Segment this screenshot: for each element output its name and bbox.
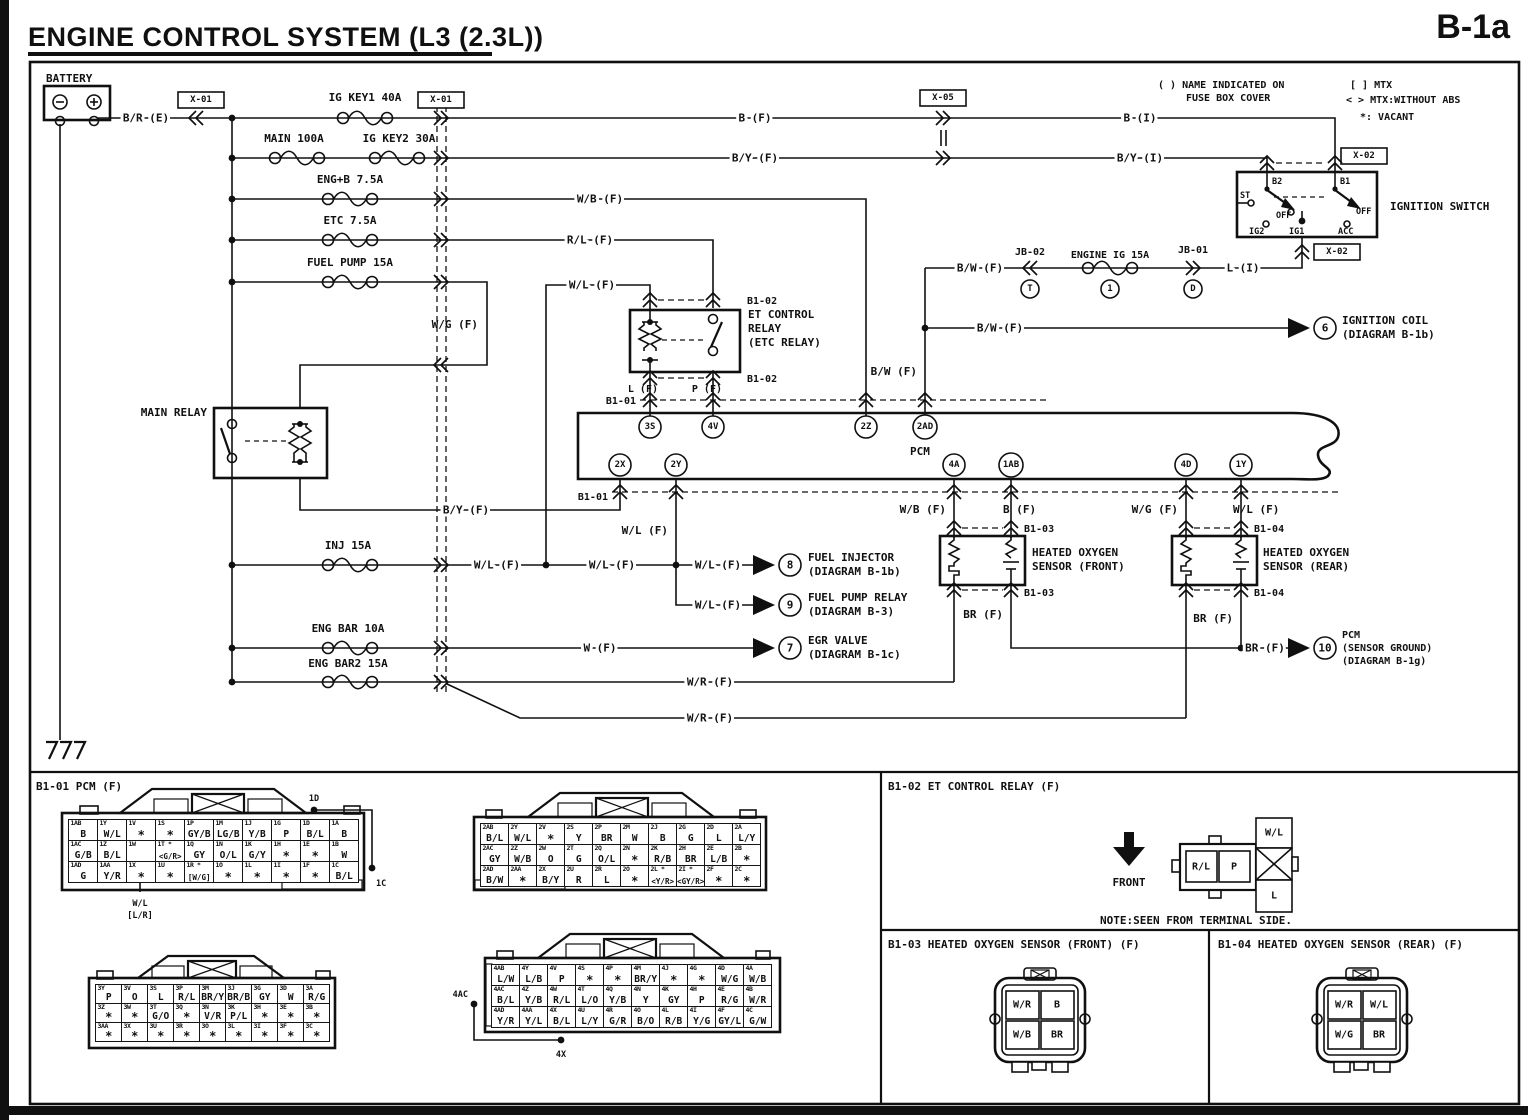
pin-cell-2S: 2SY: [564, 823, 593, 845]
pin-cell-1S: 1S*: [155, 819, 185, 841]
pin-cell-2N: 2N*: [620, 844, 649, 866]
pin-cell-2I: 2I *<GY/R>: [676, 865, 705, 887]
pin-cell-2AD: 2ADB/W: [480, 865, 509, 887]
ignition-switch-label: IGNITION SWITCH: [1390, 200, 1489, 213]
b102-row-label-upper: B1-02: [747, 296, 777, 307]
pin-cell-2G: 2GG: [676, 823, 705, 845]
pin-cell-2E: 2EL/B: [704, 844, 733, 866]
legend-name-note-1: ( ) NAME INDICATED ON: [1158, 80, 1284, 91]
ref-10-line3: (DIAGRAM B-1g): [1342, 656, 1426, 667]
panel-b103-header: B1-03 HEATED OXYGEN SENSOR (FRONT) (F): [888, 938, 1140, 951]
heated-oxygen-sensor-front: B1-03 B1-03 HEATED OXYGEN SENSOR (FRONT): [940, 521, 1125, 599]
pin-cell-3P: 3PR/L: [173, 984, 200, 1004]
ignition-off-left: OFF: [1276, 211, 1291, 221]
pin-cell-2K: 2KR/B: [648, 844, 677, 866]
pin-cell-4P: 4P*: [603, 964, 632, 986]
b101-row-label-lower: B1-01: [578, 492, 608, 503]
wire-p-f: P (F): [692, 384, 722, 395]
x02-box-lower: X-02: [1326, 247, 1348, 257]
pin-cell-4L: 4LR/B: [659, 1006, 688, 1028]
pin-cell-3E: 3E*: [277, 1003, 304, 1023]
ignition-terminal-ig1: IG1: [1289, 227, 1304, 237]
note-4ac: 4AC: [453, 990, 468, 1000]
pcm-label: PCM: [910, 445, 930, 458]
b104-cell-2: W/G: [1335, 1030, 1353, 1041]
ref-6-line1: IGNITION COIL: [1342, 314, 1428, 327]
wire-wl-f-2y: W/L (F): [622, 524, 668, 537]
wire-wl-f-inj2: W/L (F): [589, 559, 635, 572]
wire-br-f-ground: BR (F): [1245, 642, 1285, 655]
ref-7-line2: (DIAGRAM B-1c): [808, 648, 901, 661]
pin-cell-2AA: 2AA*: [508, 865, 537, 887]
b103-connector: W/R B W/B BR: [990, 968, 1090, 1072]
pcm-terminal-2y: 2Y: [671, 460, 682, 470]
fuse-inj: INJ 15A: [325, 539, 372, 552]
wiring-diagram-page: ENGINE CONTROL SYSTEM (L3 (2.3L)) B-1a (…: [0, 0, 1536, 1120]
pin-cell-4M: 4MBR/Y: [631, 964, 660, 986]
junction-t: T: [1027, 284, 1033, 294]
wire-wg-f: W/G (F): [432, 318, 478, 331]
pin-cell-3O: 3O*: [199, 1022, 226, 1042]
wire-wl-f-relay: W/L (F): [569, 279, 615, 292]
panel-b102-header: B1-02 ET CONTROL RELAY (F): [888, 780, 1060, 793]
wire-bw-f-coil: B/W (F): [977, 322, 1023, 335]
x05-box: X-05: [932, 93, 954, 103]
wire-by-f-top: B/Y (F): [732, 152, 778, 165]
hos-front-label-1: HEATED OXYGEN: [1032, 546, 1118, 559]
wire-wl-f-fpr: W/L (F): [695, 599, 741, 612]
pin-cell-1I: 1I*: [271, 861, 301, 883]
pin-cell-3Y: 3YP: [95, 984, 122, 1004]
pin-cell-3Q: 3Q*: [173, 1003, 200, 1023]
pcm-terminal-1y: 1Y: [1236, 460, 1247, 470]
panel-b104-header: B1-04 HEATED OXYGEN SENSOR (REAR) (F): [1218, 938, 1463, 951]
pin-cell-4AB: 4ABL/W: [491, 964, 520, 986]
fuse-eng-bar: ENG BAR 10A: [312, 622, 385, 635]
fuse-ig-key2: IG KEY2 30A: [363, 132, 436, 145]
et-control-relay: ET CONTROL RELAY (ETC RELAY): [630, 308, 821, 372]
wire-l-f: L (F): [628, 384, 658, 395]
pin-cell-1W: 1W: [126, 840, 156, 862]
pin-cell-4E: 4ER/G: [715, 985, 744, 1007]
pcm-terminal-4d: 4D: [1181, 460, 1192, 470]
pin-cell-2U: 2UR: [564, 865, 593, 887]
b103-row-upper: B1-03: [1024, 524, 1054, 535]
pin-cell-4AD: 4ADY/R: [491, 1006, 520, 1028]
pcm-terminal-3s: 3S: [645, 422, 656, 432]
ref-9-number: 9: [787, 599, 794, 612]
pin-cell-4J: 4J*: [659, 964, 688, 986]
b104-connector: W/R W/L W/G BR: [1312, 968, 1412, 1072]
ref-8-line2: (DIAGRAM B-1b): [808, 565, 901, 578]
pin-cell-1AB: 1ABB: [68, 819, 98, 841]
pcm-terminal-2ad: 2AD: [917, 422, 934, 432]
legend-vacant: *: VACANT: [1360, 112, 1414, 123]
pin-cell-1AA: 1AAY/R: [97, 861, 127, 883]
pin-cell-1M: 1MLG/B: [213, 819, 243, 841]
pin-cell-2A: 2AL/Y: [732, 823, 761, 845]
pin-cell-3Z: 3Z*: [95, 1003, 122, 1023]
schematic-canvas: ENGINE CONTROL SYSTEM (L3 (2.3L)) B-1a (…: [0, 0, 1536, 1120]
pcm-terminal-1ab: 1AB: [1003, 460, 1020, 470]
pin-cell-1A: 1AB: [329, 819, 359, 841]
ref-7-number: 7: [787, 642, 794, 655]
pin-cell-2H: 2HBR: [676, 844, 705, 866]
fuse-etc: ETC 7.5A: [324, 214, 377, 227]
pin-cell-2Q: 2QO/L: [592, 844, 621, 866]
pin-cell-2AC: 2ACGY: [480, 844, 509, 866]
fuse-eng-bar2: ENG BAR2 15A: [308, 657, 388, 670]
fuse-fuel-pump: FUEL PUMP 15A: [307, 256, 393, 269]
front-label: FRONT: [1112, 876, 1145, 889]
pin-cell-3S: 3SL: [147, 984, 174, 1004]
fuse-ig-key1: IG KEY1 40A: [329, 91, 402, 104]
ref-9-line2: (DIAGRAM B-3): [808, 605, 894, 618]
pin-cell-3R: 3R*: [173, 1022, 200, 1042]
pin-cell-2R: 2RL: [592, 865, 621, 887]
b104-row-lower: B1-04: [1254, 588, 1284, 599]
pin-cell-4D: 4DW/G: [715, 964, 744, 986]
pcm-terminal-4a: 4A: [949, 460, 960, 470]
pin-cell-3A: 3AR/G: [303, 984, 330, 1004]
junction-1: 1: [1107, 284, 1112, 294]
b103-cell-2: W/B: [1013, 1030, 1031, 1041]
ignition-terminal-b2: B2: [1272, 177, 1282, 187]
b102-cell-p: P: [1231, 862, 1237, 873]
pin-cell-3F: 3F*: [277, 1022, 304, 1042]
pin-cell-3H: 3H*: [251, 1003, 278, 1023]
pin-cell-4N: 4NY: [631, 985, 660, 1007]
pin-cell-2T: 2TG: [564, 844, 593, 866]
legend-name-note-2: FUSE BOX COVER: [1186, 93, 1271, 104]
pin-cell-1B: 1BW: [329, 840, 359, 862]
ref-10-line1: PCM: [1342, 630, 1360, 641]
pin-cell-1U: 1U*: [155, 861, 185, 883]
wire-wl-f-inj1: W/L (F): [474, 559, 520, 572]
pin-cell-4K: 4KGY: [659, 985, 688, 1007]
et-relay-label-1: ET CONTROL: [748, 308, 815, 321]
pin-cell-1D: 1DB/L: [300, 819, 330, 841]
wire-rl-f: R/L (F): [567, 234, 613, 247]
pin-cell-4U: 4UL/Y: [575, 1006, 604, 1028]
pin-cell-4F: 4FGY/L: [715, 1006, 744, 1028]
b102-cell-l: L: [1271, 891, 1277, 902]
pin-cell-4G: 4G*: [687, 964, 716, 986]
hos-rear-label-2: SENSOR (REAR): [1263, 560, 1349, 573]
pin-cell-4H: 4HP: [687, 985, 716, 1007]
b103-cell-3: BR: [1051, 1030, 1064, 1041]
pin-cell-4Y: 4YL/B: [519, 964, 548, 986]
b102-panel: FRONT R/L P W/L L NOTE:SEEN FROM TERMINA…: [1100, 818, 1298, 927]
pin-cell-2J: 2JB: [648, 823, 677, 845]
pin-cell-1O: 1O*: [213, 861, 243, 883]
title-underline: [28, 52, 492, 56]
ignition-switch: B2 B1 ST OFF IG2 IG1 ACC OFF IGNITION SW…: [1237, 156, 1489, 259]
wire-wr-f-2: W/R (F): [687, 712, 733, 725]
pin-cell-3C: 3C*: [303, 1022, 330, 1042]
pin-cell-1Y: 1YW/L: [97, 819, 127, 841]
b104-row-upper: B1-04: [1254, 524, 1284, 535]
pin-cell-2B: 2B*: [732, 844, 761, 866]
wire-br-f-rear: BR (F): [1193, 612, 1233, 625]
pin-cell-4A: 4AW/B: [743, 964, 772, 986]
pin-cell-4C: 4CG/W: [743, 1006, 772, 1028]
wire-by-i: B/Y (I): [1117, 152, 1163, 165]
pin-cell-3U: 3U*: [147, 1022, 174, 1042]
pin-cell-1E: 1E*: [300, 840, 330, 862]
pin-cell-1C: 1CB/L: [329, 861, 359, 883]
pin-cell-3K: 3KP/L: [225, 1003, 252, 1023]
pin-cell-2W: 2WO: [536, 844, 565, 866]
wire-bw-f-jb: B/W (F): [957, 262, 1003, 275]
junction-d: D: [1190, 284, 1196, 294]
wire-br-e: B/R (E): [123, 112, 169, 125]
main-relay-label: MAIN RELAY: [141, 406, 208, 419]
pin-cell-2F: 2F*: [704, 865, 733, 887]
fuse-engine-ig: ENGINE IG 15A: [1071, 250, 1149, 261]
pin-cell-3N: 3NV/R: [199, 1003, 226, 1023]
pin-cell-3V: 3VO: [121, 984, 148, 1004]
page-code: B-1a: [1436, 8, 1511, 46]
pin-cell-4I: 4IY/G: [687, 1006, 716, 1028]
pin-cell-1L: 1L*: [242, 861, 272, 883]
pin-cell-4X: 4XB/L: [547, 1006, 576, 1028]
pin-cell-3AA: 3AA*: [95, 1022, 122, 1042]
pin-cell-4T: 4TL/O: [575, 985, 604, 1007]
wire-wb-f-4a: W/B (F): [900, 503, 946, 516]
wire-w-f: W (F): [583, 642, 616, 655]
b104-cell-0: W/R: [1335, 1000, 1354, 1011]
pin-cell-4O: 4OB/O: [631, 1006, 660, 1028]
wire-bw-f-2ad: B/W (F): [871, 365, 917, 378]
scan-bottom-bar: [8, 1106, 1528, 1115]
note-lr: [L/R]: [127, 911, 153, 921]
wire-wg-f-4d: W/G (F): [1132, 503, 1178, 516]
b103-row-lower: B1-03: [1024, 588, 1054, 599]
wire-wl-f-1y: W/L (F): [1233, 503, 1279, 516]
hos-rear-label-1: HEATED OXYGEN: [1263, 546, 1349, 559]
pin-cell-4R: 4RG/R: [603, 1006, 632, 1028]
x01-box-a: X-01: [190, 95, 212, 105]
pin-cell-2V: 2V*: [536, 823, 565, 845]
fuse-main: MAIN 100A: [264, 132, 324, 145]
pin-cell-3D: 3DW: [277, 984, 304, 1004]
pin-cell-3T: 3TG/O: [147, 1003, 174, 1023]
pcm-terminal-4v: 4V: [708, 422, 719, 432]
jb02-label: JB-02: [1015, 247, 1045, 258]
pin-cell-1J: 1JY/B: [242, 819, 272, 841]
pin-cell-1N: 1NO/L: [213, 840, 243, 862]
wire-b-f: B (F): [738, 112, 771, 125]
pin-cell-4AA: 4AAY/L: [519, 1006, 548, 1028]
b102-note: NOTE:SEEN FROM TERMINAL SIDE.: [1100, 914, 1292, 927]
x02-box-upper: X-02: [1353, 151, 1375, 161]
pin-cell-2O: 2O*: [620, 865, 649, 887]
legend-mtx-abs: < > MTX:WITHOUT ABS: [1346, 95, 1460, 106]
pin-cell-4S: 4S*: [575, 964, 604, 986]
main-relay: MAIN RELAY: [141, 406, 327, 478]
ref-8-number: 8: [787, 559, 794, 572]
legend: ( ) NAME INDICATED ON FUSE BOX COVER [ ]…: [1158, 80, 1460, 123]
ignition-terminal-b1: B1: [1340, 177, 1350, 187]
note-4x: 4X: [556, 1050, 566, 1060]
pin-cell-1AD: 1ADG: [68, 861, 98, 883]
pin-cell-3G: 3GGY: [251, 984, 278, 1004]
pin-cell-4B: 4BW/R: [743, 985, 772, 1007]
b103-cell-1: B: [1054, 1000, 1060, 1011]
pin-cell-2L: 2L *<Y/R>: [648, 865, 677, 887]
b101-crossings: B1-01 B1-01: [578, 393, 1340, 503]
wire-wl-f-inj3: W/L (F): [695, 559, 741, 572]
pin-cell-2M: 2MW: [620, 823, 649, 845]
ignition-terminal-acc: ACC: [1338, 227, 1353, 237]
pin-cell-4V: 4VP: [547, 964, 576, 986]
wire-b-i: B (I): [1123, 112, 1156, 125]
ref-6-number: 6: [1322, 322, 1329, 335]
pin-cell-1AC: 1ACG/B: [68, 840, 98, 862]
pin-cell-3L: 3L*: [225, 1022, 252, 1042]
pcm: PCM 3S 4V 2Z 2AD 2X 2Y 4A 1AB 4D 1Y: [578, 413, 1339, 479]
ignition-off-right: OFF: [1356, 207, 1371, 217]
fuse-eng-b: ENG+B 7.5A: [317, 173, 384, 186]
pin-cell-2P: 2PBR: [592, 823, 621, 845]
pin-cell-2X: 2XB/Y: [536, 865, 565, 887]
pin-cell-1Z: 1ZB/L: [97, 840, 127, 862]
pin-cell-4Q: 4QY/B: [603, 985, 632, 1007]
pin-cell-1F: 1F*: [300, 861, 330, 883]
ref-10-line2: (SENSOR GROUND): [1342, 643, 1432, 654]
pin-cell-3X: 3X*: [121, 1022, 148, 1042]
wire-l-i: L (I): [1226, 262, 1259, 275]
b103-cell-0: W/R: [1013, 1000, 1032, 1011]
pin-cell-2C: 2C*: [732, 865, 761, 887]
b102-cell-wl: W/L: [1265, 828, 1283, 839]
b104-cell-3: BR: [1373, 1030, 1386, 1041]
battery-label: BATTERY: [46, 72, 93, 85]
note-1c: 1C: [376, 879, 386, 889]
page-title: ENGINE CONTROL SYSTEM (L3 (2.3L)): [28, 22, 544, 52]
note-1d: 1D: [309, 794, 319, 804]
note-wl: W/L: [132, 899, 147, 909]
ignition-terminal-ig2: IG2: [1249, 227, 1264, 237]
pin-cell-1K: 1KG/Y: [242, 840, 272, 862]
pin-cell-2Y: 2YW/L: [508, 823, 537, 845]
wire-wr-f-1: W/R (F): [687, 676, 733, 689]
ignition-terminal-st: ST: [1240, 191, 1250, 201]
x01-box-b: X-01: [430, 95, 452, 105]
pin-cell-2Z: 2ZW/B: [508, 844, 537, 866]
pin-cell-2D: 2DL: [704, 823, 733, 845]
wire-labels: B/R (E) B (F) B (I) B/Y (F) B/Y (I) W/B …: [123, 112, 1285, 725]
heated-oxygen-sensor-rear: B1-04 B1-04 HEATED OXYGEN SENSOR (REAR): [1172, 521, 1349, 599]
wire-by-f-lower: B/Y (F): [443, 504, 489, 517]
pin-cell-1H: 1H*: [271, 840, 301, 862]
pin-cell-4Z: 4ZY/B: [519, 985, 548, 1007]
pin-cell-1Q: 1QGY: [184, 840, 214, 862]
pin-cell-1P: 1PGY/B: [184, 819, 214, 841]
et-relay-label-2: RELAY: [748, 322, 781, 335]
pcm-terminals: 3S 4V 2Z 2AD 2X 2Y 4A 1AB 4D 1Y: [609, 415, 1252, 477]
fuse-labels: IG KEY1 40A MAIN 100A IG KEY2 30A ENG+B …: [264, 91, 1149, 670]
ref-10-number: 10: [1318, 642, 1331, 655]
pin-cell-3M: 3MBR/Y: [199, 984, 226, 1004]
panel-b101-header: B1-01 PCM (F): [36, 780, 122, 793]
pin-cell-1R: 1R *[W/G]: [184, 861, 214, 883]
b102-row-label-lower: B1-02: [747, 374, 777, 385]
ref-7-line1: EGR VALVE: [808, 634, 868, 647]
pin-cell-4AC: 4ACB/L: [491, 985, 520, 1007]
pin-cell-1G: 1GP: [271, 819, 301, 841]
diagram-references: 8 FUEL INJECTOR (DIAGRAM B-1b) 9 FUEL PU…: [753, 314, 1435, 667]
scan-edge-bar: [0, 0, 9, 1120]
jb01-label: JB-01: [1178, 245, 1208, 256]
et-relay-label-3: (ETC RELAY): [748, 336, 821, 349]
pin-cell-1X: 1X*: [126, 861, 156, 883]
ref-9-line1: FUEL PUMP RELAY: [808, 591, 908, 604]
pin-cell-1V: 1V*: [126, 819, 156, 841]
pin-cell-3B: 3B*: [303, 1003, 330, 1023]
pin-cell-4W: 4WR/L: [547, 985, 576, 1007]
legend-mtx: [ ] MTX: [1350, 80, 1392, 91]
wire-wb-f-top: W/B (F): [577, 193, 623, 206]
wire-br-f-front: BR (F): [963, 608, 1003, 621]
wire-b-f-1ab: B (F): [1003, 503, 1036, 516]
pin-cell-3J: 3JBR/B: [225, 984, 252, 1004]
b104-cell-1: W/L: [1370, 1000, 1388, 1011]
b102-cell-rl: R/L: [1192, 862, 1210, 873]
b101-row-label-upper: B1-01: [606, 396, 636, 407]
ref-6-line2: (DIAGRAM B-1b): [1342, 328, 1435, 341]
wiring: [60, 115, 1335, 740]
hos-front-label-2: SENSOR (FRONT): [1032, 560, 1125, 573]
pcm-terminal-2z: 2Z: [861, 422, 872, 432]
pcm-terminal-2x: 2X: [615, 460, 626, 470]
pin-cell-3I: 3I*: [251, 1022, 278, 1042]
pin-cell-2AB: 2ABB/L: [480, 823, 509, 845]
ground-icon: [46, 742, 85, 759]
pin-cell-3W: 3W*: [121, 1003, 148, 1023]
pin-cell-1T: 1T *<G/R>: [155, 840, 185, 862]
ref-8-line1: FUEL INJECTOR: [808, 551, 894, 564]
